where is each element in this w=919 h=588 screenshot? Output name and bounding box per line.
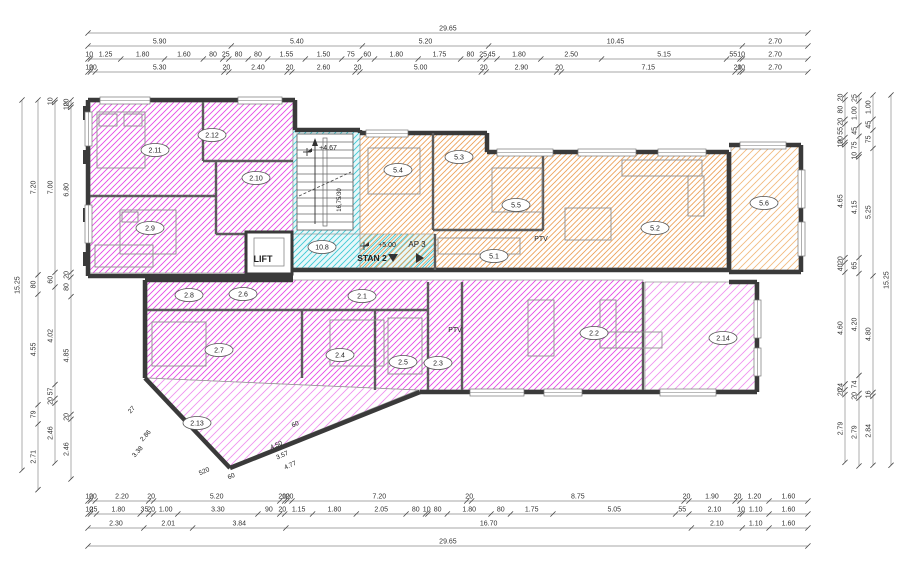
dimension-value: 90 (265, 507, 273, 514)
dimension-value: 2.71 (31, 450, 38, 464)
room-number: 2.11 (148, 147, 161, 154)
dimension-value: 20 (64, 413, 71, 421)
room-number: 5.4 (393, 167, 403, 174)
room-number: 2.2 (589, 330, 599, 337)
room-number: 2.12 (205, 132, 219, 139)
dimension-value: 1.80 (512, 52, 526, 59)
room-label-2.13: 2.13 (183, 417, 211, 430)
room-number: 2.4 (335, 352, 345, 359)
dimension-value: 1.90 (705, 494, 719, 501)
dimension-value: 20 (89, 494, 97, 501)
dimension-value: 1.00 (866, 100, 873, 114)
dimension-value: 7.20 (31, 180, 38, 194)
dimension-value: 2.46 (48, 426, 55, 440)
dimension-value: 2.70 (768, 39, 782, 46)
room-number: 10.8 (315, 244, 329, 251)
dimension-value: 3.84 (232, 521, 246, 528)
dimension-value: 45 (866, 121, 873, 129)
dimension-value: 65 (852, 262, 859, 270)
dimension-value: 20 (480, 65, 488, 72)
dimension-value: 80 (254, 52, 262, 59)
dimensions-bottom: 10202.20205.202010207.20208.75201.90201.… (85, 494, 810, 549)
dimension-value: 5.40 (290, 39, 304, 46)
room-number: 5.5 (511, 202, 521, 209)
room-label-2.11: 2.11 (141, 144, 169, 157)
dimension-value: 2.10 (708, 507, 722, 514)
dimension-value: 1.10 (749, 521, 763, 528)
dimension-value: 20 (286, 494, 294, 501)
dimensions-left: 15.257.20804.55792.71107.00604.0257202.4… (15, 97, 74, 492)
room-label-2.12: 2.12 (198, 129, 226, 142)
room-label-2.14: 2.14 (709, 332, 737, 345)
room-number: 2.14 (716, 335, 730, 342)
dimension-value: 2.01 (161, 521, 175, 528)
dimension-value: 20 (89, 65, 97, 72)
annotation-text: 2.86 (139, 429, 153, 443)
dimension-value: 20 (555, 65, 563, 72)
dimension-value: 6.80 (64, 183, 71, 197)
dimension-value: 55 (729, 52, 737, 59)
annotation-text: LIFT (254, 254, 273, 264)
dimension-value: 5.20 (210, 494, 224, 501)
room-number: 2.1 (357, 293, 367, 300)
dimension-value: 15.25 (884, 271, 891, 289)
dimension-value: 29.65 (439, 26, 457, 33)
dimension-value: 80 (31, 281, 38, 289)
dimension-value: 2.50 (564, 52, 578, 59)
dimension-value: 20 (354, 65, 362, 72)
dimension-value: 5.05 (607, 507, 621, 514)
dimension-value: 20 (683, 494, 691, 501)
region-apartment-2-lower (147, 280, 643, 390)
dimension-value: 2.79 (852, 425, 859, 439)
dimension-value: 10.45 (607, 39, 625, 46)
dimensions-right: 2080205520104.6520404.6024202.79251.0045… (838, 92, 894, 468)
room-label-2.9: 2.9 (136, 222, 164, 235)
dimension-value: 2.10 (710, 521, 724, 528)
dimension-value: 80 (235, 52, 243, 59)
dimension-value: 10 (64, 102, 71, 110)
dimension-value: 10 (423, 507, 431, 514)
dimension-value: 10 (838, 140, 845, 148)
dimension-value: 2.40 (251, 65, 265, 72)
room-number: 5.2 (650, 225, 660, 232)
dimension-value: 1.60 (782, 521, 796, 528)
floor-plan-drawing: 2.112.122.102.910.85.45.35.55.15.25.62.8… (0, 0, 919, 588)
room-label-2.6: 2.6 (229, 288, 257, 301)
room-number: 5.1 (489, 253, 499, 260)
dimension-value: 1.80 (112, 507, 126, 514)
dimension-value: 20 (838, 256, 845, 264)
dimension-value: 4.02 (48, 329, 55, 343)
dimension-value: 55 (838, 127, 845, 135)
dimension-value: 74 (852, 380, 859, 388)
dimension-value: 55 (678, 507, 686, 514)
dimension-value: 20 (838, 118, 845, 126)
dimension-value: 8.75 (571, 494, 585, 501)
annotation-text: 16,75/30 (337, 188, 343, 212)
dimension-value: 79 (31, 410, 38, 418)
dimension-value: 2.84 (866, 424, 873, 438)
dimension-value: 1.60 (782, 494, 796, 501)
dimension-value: 20 (147, 507, 155, 514)
dimension-value: 4.20 (852, 318, 859, 332)
dimension-value: 25 (222, 52, 230, 59)
dimension-value: 60 (48, 276, 55, 284)
dimension-value: 10 (737, 507, 745, 514)
dimension-value: 2.70 (768, 65, 782, 72)
dimension-value: 20 (852, 392, 859, 400)
dimension-value: 75 (347, 52, 355, 59)
room-label-5.1: 5.1 (480, 250, 508, 263)
room-number: 2.7 (214, 347, 224, 354)
dimension-value: 80 (467, 52, 475, 59)
dimension-value: 5.25 (866, 205, 873, 219)
dimension-value: 80 (434, 507, 442, 514)
dimension-value: 4.85 (64, 349, 71, 363)
dimension-value: 2.70 (768, 52, 782, 59)
dimension-value: 7.00 (48, 180, 55, 194)
dimension-value: 20 (838, 388, 845, 396)
dimension-value: 10 (737, 52, 745, 59)
dimension-value: 20 (286, 65, 294, 72)
floor-plan-page: 2.112.122.102.910.85.45.35.55.15.25.62.8… (0, 0, 919, 588)
dimension-value: 10 (48, 97, 55, 105)
dimension-value: 20 (278, 507, 286, 514)
dimension-value: 80 (412, 507, 420, 514)
dimension-value: 1.60 (177, 52, 191, 59)
room-label-10.8: 10.8 (308, 241, 336, 254)
dimension-value: 2.79 (838, 422, 845, 436)
annotation-text: +4.67 (319, 145, 337, 152)
dimension-value: 45 (488, 52, 496, 59)
dimension-value: 20 (64, 271, 71, 279)
annotation-text: AP 3 (408, 240, 426, 249)
annotation-text: PTV (534, 236, 548, 243)
dimension-value: 80 (838, 106, 845, 114)
annotation-text: 520 (198, 466, 211, 477)
dimension-value: 7.20 (373, 494, 387, 501)
annotation-text: PTV (448, 327, 462, 334)
annotation-text: 3.38 (131, 445, 145, 459)
room-label-2.1: 2.1 (348, 290, 376, 303)
dimension-value: 1.80 (328, 507, 342, 514)
dimension-value: 45 (852, 127, 859, 135)
pilaster (83, 150, 89, 164)
dimension-value: 80 (64, 283, 71, 291)
room-label-2.5: 2.5 (389, 356, 417, 369)
dimension-value: 80 (497, 507, 505, 514)
dimension-value: 4.55 (31, 343, 38, 357)
dimension-value: 25 (90, 507, 98, 514)
dimension-value: 1.80 (462, 507, 476, 514)
dimension-value: 1.80 (390, 52, 404, 59)
dimension-value: 1.75 (525, 507, 539, 514)
dimension-value: 1.10 (749, 507, 763, 514)
room-label-5.5: 5.5 (502, 199, 530, 212)
room-label-2.3: 2.3 (424, 357, 452, 370)
dimension-value: 1.20 (748, 494, 762, 501)
dimension-value: 3.30 (211, 507, 225, 514)
dimension-value: 1.55 (280, 52, 294, 59)
room-label-5.4: 5.4 (384, 164, 412, 177)
dimension-value: 20 (222, 65, 230, 72)
room-label-5.2: 5.2 (641, 222, 669, 235)
dimension-value: 2.05 (374, 507, 388, 514)
dimension-value: 75 (866, 135, 873, 143)
dimension-value: 5.15 (657, 52, 671, 59)
room-label-2.7: 2.7 (205, 344, 233, 357)
room-number: 2.8 (184, 292, 194, 299)
dimension-value: 75 (852, 141, 859, 149)
dimension-value: 1.75 (433, 52, 447, 59)
dimension-value: 4.60 (838, 321, 845, 335)
dimension-value: 10 (85, 52, 93, 59)
dimension-value: 1.15 (292, 507, 306, 514)
dimension-value: 1.60 (782, 507, 796, 514)
annotation-text: 27 (127, 405, 137, 415)
room-number: 2.13 (190, 420, 204, 427)
dimension-value: 57 (48, 387, 55, 395)
dimension-value: 29.65 (439, 539, 457, 546)
dimension-value: 15.25 (15, 276, 22, 294)
room-label-5.6: 5.6 (750, 197, 778, 210)
dimension-value: 10 (737, 65, 745, 72)
annotation-text: STAN 2 (357, 253, 387, 263)
dimension-value: 1.00 (852, 106, 859, 120)
dimensions-top: 29.655.905.405.2010.452.70101.251.801.60… (85, 26, 810, 75)
dimension-value: 40 (838, 263, 845, 271)
dimension-value: 60 (363, 52, 371, 59)
room-label-2.4: 2.4 (326, 349, 354, 362)
dimension-value: 5.30 (153, 65, 167, 72)
dimension-value: 20 (48, 397, 55, 405)
room-number: 2.5 (398, 359, 408, 366)
room-number: 5.3 (454, 154, 464, 161)
dimension-value: 5.00 (414, 65, 428, 72)
dimension-value: 16.70 (480, 521, 498, 528)
dimension-value: 4.15 (852, 200, 859, 214)
dimension-value: 1.25 (99, 52, 113, 59)
dimension-value: 16 (866, 390, 873, 398)
dimension-value: 10 (852, 152, 859, 160)
annotation-text: 60 (227, 472, 237, 481)
room-number: 2.3 (433, 360, 443, 367)
dimension-value: 20 (465, 494, 473, 501)
regions (90, 102, 799, 466)
dimension-value: 1.80 (136, 52, 150, 59)
lift-shaft (246, 232, 292, 274)
dimension-value: 4.65 (838, 194, 845, 208)
room-label-2.2: 2.2 (580, 327, 608, 340)
dimension-value: 2.20 (115, 494, 129, 501)
dimension-value: 25 (479, 52, 487, 59)
room-label-2.10: 2.10 (242, 172, 270, 185)
room-number: 2.6 (238, 291, 248, 298)
room-number: 2.9 (145, 225, 155, 232)
dimension-value: 1.50 (317, 52, 331, 59)
annotation-text: 4.77 (283, 460, 298, 472)
dimension-value: 20 (147, 494, 155, 501)
dimension-value: 20 (838, 93, 845, 101)
dimension-value: 5.90 (153, 39, 167, 46)
room-label-2.8: 2.8 (175, 289, 203, 302)
room-label-5.3: 5.3 (445, 151, 473, 164)
dimension-value: 20 (734, 494, 742, 501)
annotation-text: +5.00 (378, 242, 396, 249)
dimension-value: 80 (209, 52, 217, 59)
pilaster (83, 252, 89, 266)
room-number: 5.6 (759, 200, 769, 207)
dimension-value: 1.00 (159, 507, 173, 514)
dimension-value: 4.80 (866, 327, 873, 341)
dimension-value: 2.90 (515, 65, 529, 72)
dimension-value: 25 (852, 94, 859, 102)
dimension-value: 5.20 (419, 39, 433, 46)
room-number: 2.10 (249, 175, 263, 182)
dimension-value: 2.46 (64, 442, 71, 456)
region-terrace-2-14 (645, 282, 755, 390)
dimension-value: 2.30 (109, 521, 123, 528)
dimension-value: 2.60 (317, 65, 331, 72)
dimension-value: 7.15 (641, 65, 655, 72)
